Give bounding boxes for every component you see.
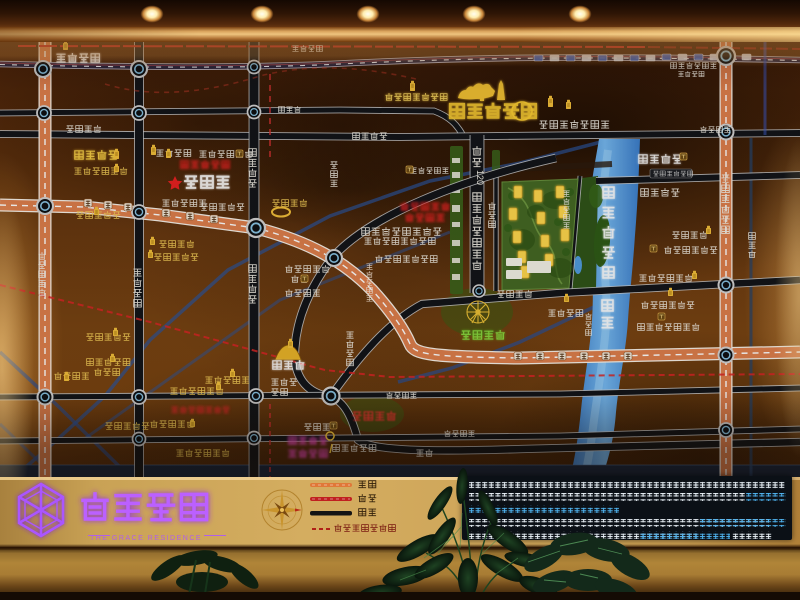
svg-text:120: 120 — [475, 170, 485, 185]
